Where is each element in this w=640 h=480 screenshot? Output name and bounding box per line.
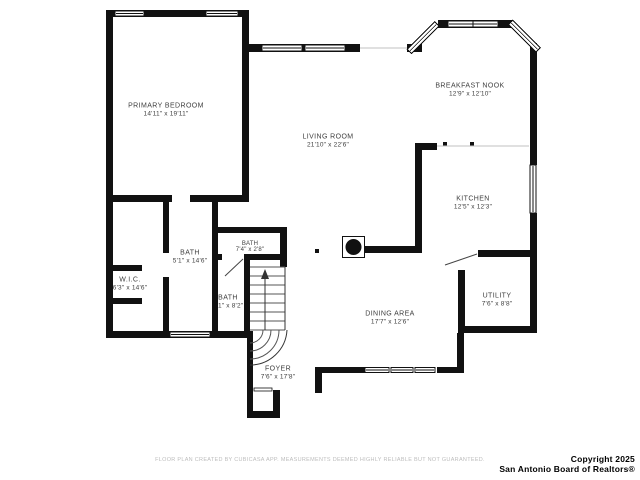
room-bath-main: BATH 5'1" x 14'6" (173, 250, 207, 265)
room-dims: 21'10" x 22'6" (302, 142, 353, 149)
room-kitchen: KITCHEN 12'5" x 12'3" (454, 196, 492, 211)
room-bath-small: BATH 7'4" x 2'8" (236, 241, 264, 253)
room-primary-bedroom: PRIMARY BEDROOM 14'11" x 19'11" (128, 103, 204, 118)
floor-plan-page: PRIMARY BEDROOM 14'11" x 19'11" BREAKFAS… (0, 0, 640, 480)
copyright-text: Copyright 2025 San Antonio Board of Real… (499, 455, 635, 474)
room-dims: 14'11" x 19'11" (128, 111, 204, 118)
room-name: PRIMARY BEDROOM (128, 103, 204, 110)
room-name: BREAKFAST NOOK (435, 83, 504, 90)
room-dims: 7'6" x 8'8" (482, 301, 513, 308)
room-dims: 7'6" x 17'8" (261, 374, 295, 381)
room-dims: 12'9" x 12'10" (435, 91, 504, 98)
room-name: W.I.C. (113, 277, 147, 284)
room-dims: 12'5" x 12'3" (454, 204, 492, 211)
room-name: DINING AREA (365, 311, 415, 318)
room-foyer: FOYER 7'6" x 17'8" (261, 366, 295, 381)
copyright-line2: San Antonio Board of Realtors® (499, 465, 635, 475)
room-name: KITCHEN (454, 196, 492, 203)
room-living-room: LIVING ROOM 21'10" x 22'6" (302, 134, 353, 149)
room-dims: 17'7" x 12'6" (365, 319, 415, 326)
room-dims: 3'1" x 8'2" (213, 303, 244, 310)
room-name: BATH (173, 250, 207, 257)
room-name: FOYER (261, 366, 295, 373)
room-labels: PRIMARY BEDROOM 14'11" x 19'11" BREAKFAS… (0, 0, 640, 480)
room-wic: W.I.C. 6'3" x 14'6" (113, 277, 147, 292)
room-bath-narrow: BATH 3'1" x 8'2" (213, 295, 244, 310)
room-breakfast-nook: BREAKFAST NOOK 12'9" x 12'10" (435, 83, 504, 98)
room-dims: 6'3" x 14'6" (113, 285, 147, 292)
room-utility: UTILITY 7'6" x 8'8" (482, 293, 513, 308)
room-name: LIVING ROOM (302, 134, 353, 141)
room-dining-area: DINING AREA 17'7" x 12'6" (365, 311, 415, 326)
room-name: UTILITY (482, 293, 513, 300)
room-dims: 5'1" x 14'6" (173, 258, 207, 265)
room-dims: 7'4" x 2'8" (236, 247, 264, 253)
room-name: BATH (213, 295, 244, 302)
